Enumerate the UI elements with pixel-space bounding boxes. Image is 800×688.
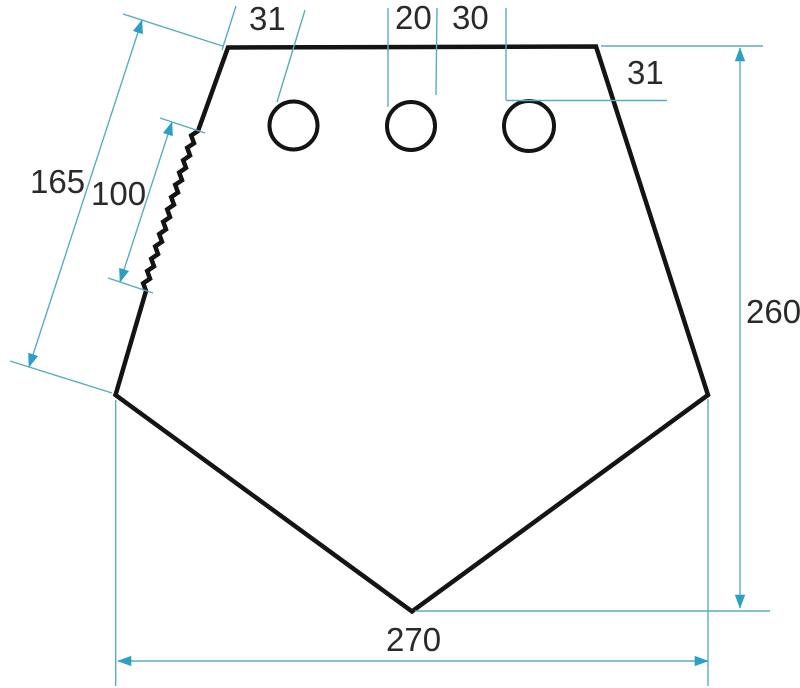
hole-2 (387, 102, 435, 150)
dim-label-hole-diameter: 20 (395, 1, 432, 34)
dim-label-offset-top-left: 31 (249, 2, 286, 35)
plate-outline (116, 47, 709, 612)
drawing-canvas: 31 20 30 31 165 100 260 270 (0, 0, 800, 688)
ext-20-right (436, 8, 437, 95)
dim-label-hole-spacing: 30 (452, 1, 489, 34)
hole-3 (504, 101, 554, 151)
dim-label-offset-top-right: 31 (627, 56, 664, 89)
dim-label-serration-length: 100 (91, 177, 146, 210)
drawing-svg (0, 0, 800, 688)
ext-165-bottom (10, 361, 112, 393)
hole-1 (270, 102, 318, 150)
dim-label-overall-height: 260 (746, 295, 800, 328)
dim-label-overall-width: 270 (386, 623, 441, 656)
dim-label-edge-length: 165 (30, 165, 85, 198)
ext-31-oblique-left (222, 6, 236, 50)
